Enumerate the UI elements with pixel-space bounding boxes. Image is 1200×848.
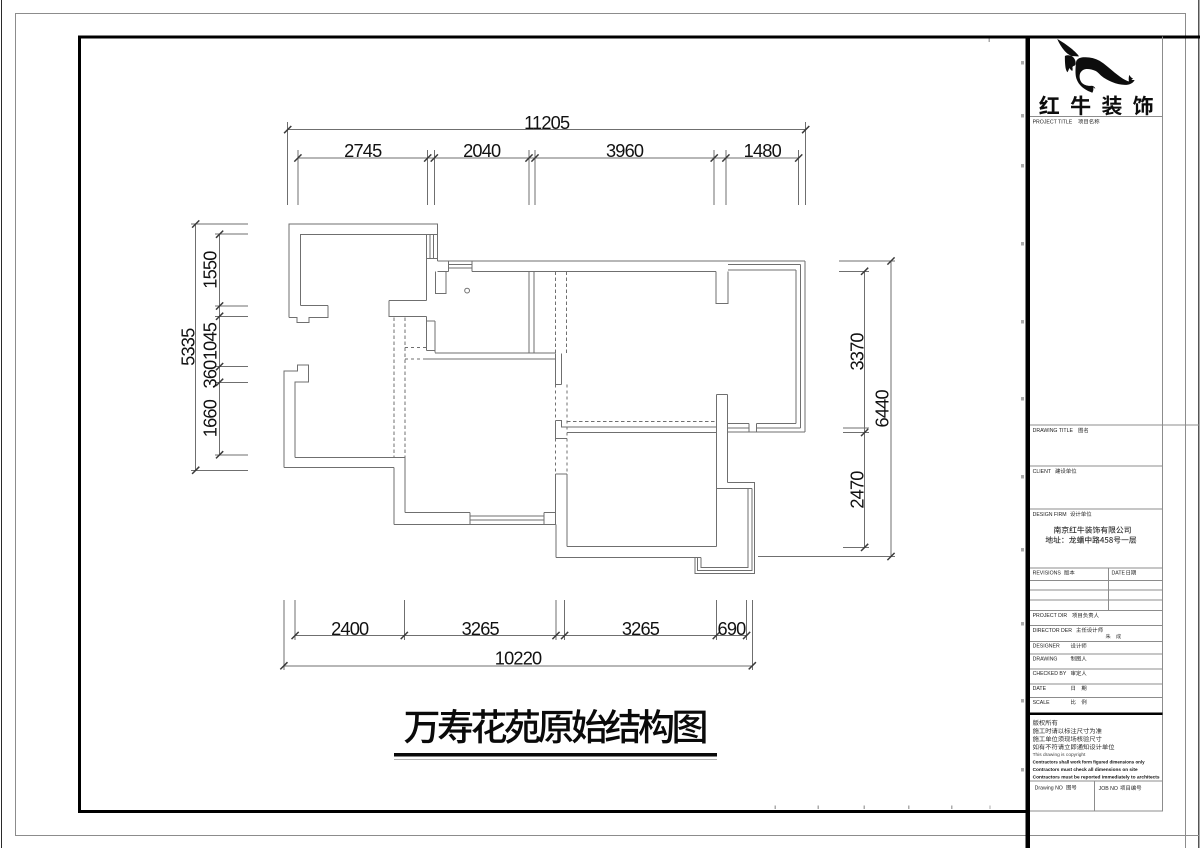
- svg-text:This drawing is copyright: This drawing is copyright: [1033, 752, 1086, 758]
- svg-text:690: 690: [718, 619, 747, 639]
- svg-text:REVISIONS: REVISIONS: [1033, 571, 1062, 577]
- svg-text:11205: 11205: [524, 113, 570, 133]
- svg-text:3265: 3265: [462, 619, 500, 639]
- svg-text:360: 360: [200, 360, 220, 389]
- svg-text:PROJECT TITLE: PROJECT TITLE: [1033, 119, 1073, 125]
- svg-text:DATE: DATE: [1033, 686, 1047, 692]
- svg-text:DESIGNER: DESIGNER: [1033, 644, 1060, 650]
- svg-text:10220: 10220: [495, 649, 542, 669]
- svg-text:JOB NO: JOB NO: [1099, 786, 1118, 792]
- svg-text:6440: 6440: [873, 389, 893, 427]
- svg-text:DIRECTOR DER: DIRECTOR DER: [1033, 628, 1073, 634]
- svg-text:DRAWING: DRAWING: [1033, 657, 1058, 663]
- svg-text:Contractors must check all dim: Contractors must check all dimensions on…: [1033, 767, 1138, 773]
- svg-text:SCALE: SCALE: [1033, 700, 1051, 706]
- svg-text:2470: 2470: [848, 471, 868, 509]
- svg-text:2400: 2400: [331, 619, 369, 639]
- svg-text:CHECKED BY: CHECKED BY: [1033, 671, 1067, 677]
- svg-text:1660: 1660: [200, 399, 220, 437]
- svg-text:5335: 5335: [179, 328, 199, 366]
- svg-text:PROJECT DIR: PROJECT DIR: [1033, 613, 1068, 619]
- svg-text:1550: 1550: [200, 251, 220, 289]
- svg-text:3960: 3960: [606, 141, 644, 161]
- svg-text:DRAWING TITLE: DRAWING TITLE: [1033, 428, 1074, 434]
- svg-text:Contractors shall work form fi: Contractors shall work form figured dime…: [1033, 759, 1145, 765]
- svg-text:2745: 2745: [344, 141, 382, 161]
- svg-text:DESIGN FIRM: DESIGN FIRM: [1033, 512, 1067, 518]
- svg-text:CLIENT: CLIENT: [1033, 469, 1052, 475]
- svg-text:1045: 1045: [200, 322, 220, 360]
- svg-text:2040: 2040: [463, 141, 501, 161]
- svg-text:DATE: DATE: [1112, 571, 1126, 577]
- svg-text:Contractors must be reported i: Contractors must be reported immediately…: [1033, 775, 1160, 781]
- svg-text:3370: 3370: [848, 333, 868, 371]
- svg-text:Drawing NO: Drawing NO: [1035, 785, 1063, 791]
- svg-text:3265: 3265: [622, 619, 660, 639]
- svg-text:1480: 1480: [744, 141, 782, 161]
